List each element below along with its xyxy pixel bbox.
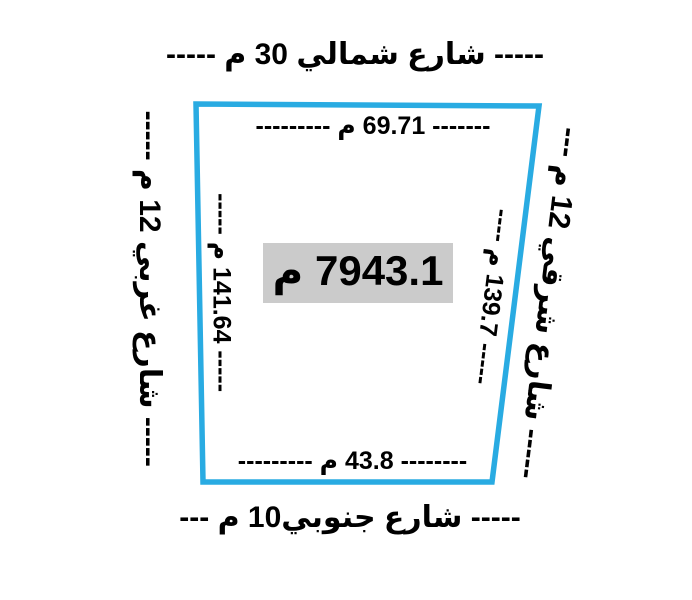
west-dimension-label: ----- 141.64 م -----: [205, 163, 236, 423]
south-street-label: ----- شارع جنوبي10 م ---: [140, 499, 560, 537]
north-dimension-label: ------- 69.71 م ---------: [228, 111, 518, 142]
plot-diagram: ----- شارع شمالي 30 م ----- ------- 69.7…: [0, 0, 692, 600]
north-street-label: ----- شارع شمالي 30 م -----: [140, 36, 570, 74]
area-value: 7943.1 م: [263, 243, 454, 303]
west-street-label: ----- شارع غربي 12 م -----: [130, 109, 168, 469]
area-label: 7943.1 م: [248, 236, 468, 310]
south-dimension-label: -------- 43.8 م ---------: [190, 446, 515, 477]
